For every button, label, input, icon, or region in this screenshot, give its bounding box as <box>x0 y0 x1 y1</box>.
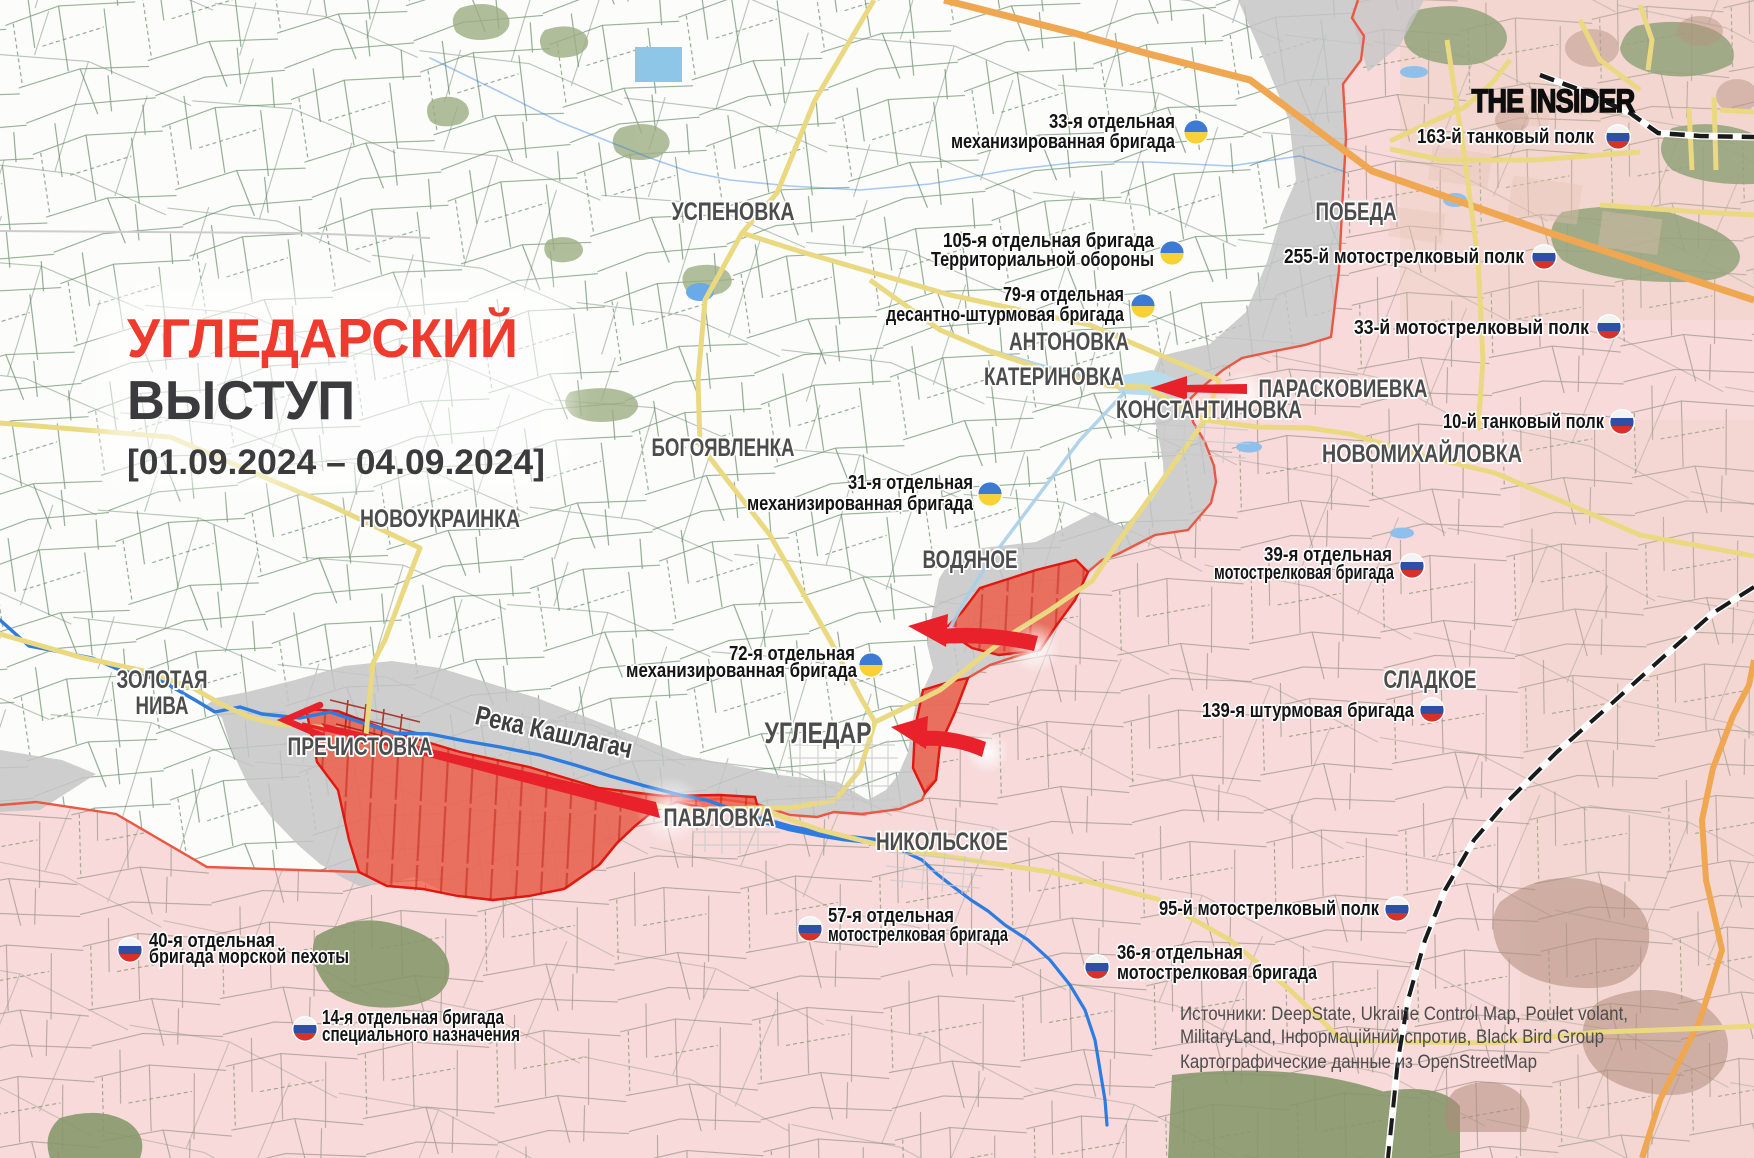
svg-text:33-й мотострелковый полк: 33-й мотострелковый полк <box>1354 317 1590 339</box>
svg-text:механизированная бригада: механизированная бригада <box>626 660 858 682</box>
svg-text:10-й танковый полк: 10-й танковый полк <box>1443 411 1605 433</box>
svg-text:КАТЕРИНОВКА: КАТЕРИНОВКА <box>984 363 1124 391</box>
svg-text:139-я штурмовая бригада: 139-я штурмовая бригада <box>1202 700 1415 722</box>
svg-text:95-й мотострелковый полк: 95-й мотострелковый полк <box>1159 898 1380 920</box>
svg-text:механизированная бригада: механизированная бригада <box>747 493 974 515</box>
svg-text:ПРЕЧИСТОВКА: ПРЕЧИСТОВКА <box>288 733 433 761</box>
svg-text:БОГОЯВЛЕНКА: БОГОЯВЛЕНКА <box>652 434 795 462</box>
svg-text:НИВА: НИВА <box>136 692 189 720</box>
svg-text:НИКОЛЬСКОЕ: НИКОЛЬСКОЕ <box>876 828 1008 856</box>
svg-text:УГЛЕДАРСКИЙ: УГЛЕДАРСКИЙ <box>127 306 518 369</box>
svg-text:163-й танковый полк: 163-й танковый полк <box>1417 126 1595 148</box>
svg-text:THE INSIDER: THE INSIDER <box>1472 84 1635 120</box>
svg-text:УГЛЕДАР: УГЛЕДАР <box>765 717 872 750</box>
svg-text:мотострелковая бригада: мотострелковая бригада <box>828 924 1009 946</box>
svg-text:33-я отдельная: 33-я отдельная <box>1049 111 1175 133</box>
svg-text:ВОДЯНОЕ: ВОДЯНОЕ <box>923 546 1018 574</box>
svg-text:Картографические данные из Ope: Картографические данные из OpenStreetMap <box>1180 1052 1537 1073</box>
svg-text:255-й мотострелковый полк: 255-й мотострелковый полк <box>1284 246 1525 268</box>
svg-text:бригада морской пехоты: бригада морской пехоты <box>149 946 349 968</box>
svg-text:ПОБЕДА: ПОБЕДА <box>1316 198 1397 226</box>
svg-text:Источники: DeepState, Ukraine: Источники: DeepState, Ukraine Control Ma… <box>1180 1004 1628 1025</box>
svg-text:УСПЕНОВКА: УСПЕНОВКА <box>672 198 795 226</box>
svg-text:АНТОНОВКА: АНТОНОВКА <box>1009 328 1129 356</box>
svg-text:КОНСТАНТИНОВКА: КОНСТАНТИНОВКА <box>1116 396 1302 424</box>
svg-text:ЗОЛОТАЯ: ЗОЛОТАЯ <box>117 666 208 694</box>
svg-text:НОВОУКРАИНКА: НОВОУКРАИНКА <box>360 505 520 533</box>
svg-text:31-я отдельная: 31-я отдельная <box>848 472 973 494</box>
svg-text:ПАВЛОВКА: ПАВЛОВКА <box>664 804 775 832</box>
svg-text:[01.09.2024 – 04.09.2024]: [01.09.2024 – 04.09.2024] <box>127 443 545 482</box>
svg-text:НОВОМИХАЙЛОВКА: НОВОМИХАЙЛОВКА <box>1322 438 1522 468</box>
svg-text:MilitaryLand, Інформаційний сп: MilitaryLand, Інформаційний спротив, Bla… <box>1180 1027 1604 1048</box>
svg-text:мотострелковая бригада: мотострелковая бригада <box>1214 562 1395 584</box>
svg-text:36-я отдельная: 36-я отдельная <box>1117 942 1243 964</box>
svg-text:мотострелковая бригада: мотострелковая бригада <box>1117 962 1318 984</box>
svg-text:специального назначения: специального назначения <box>322 1024 520 1046</box>
svg-text:Территориальной обороны: Территориальной обороны <box>931 249 1154 271</box>
svg-text:ВЫСТУП: ВЫСТУП <box>127 369 355 431</box>
svg-text:десантно-штурмовая бригада: десантно-штурмовая бригада <box>886 304 1125 326</box>
svg-text:79-я отдельная: 79-я отдельная <box>1003 284 1124 306</box>
svg-text:СЛАДКОЕ: СЛАДКОЕ <box>1384 666 1477 694</box>
svg-text:механизированная бригада: механизированная бригада <box>951 131 1176 153</box>
